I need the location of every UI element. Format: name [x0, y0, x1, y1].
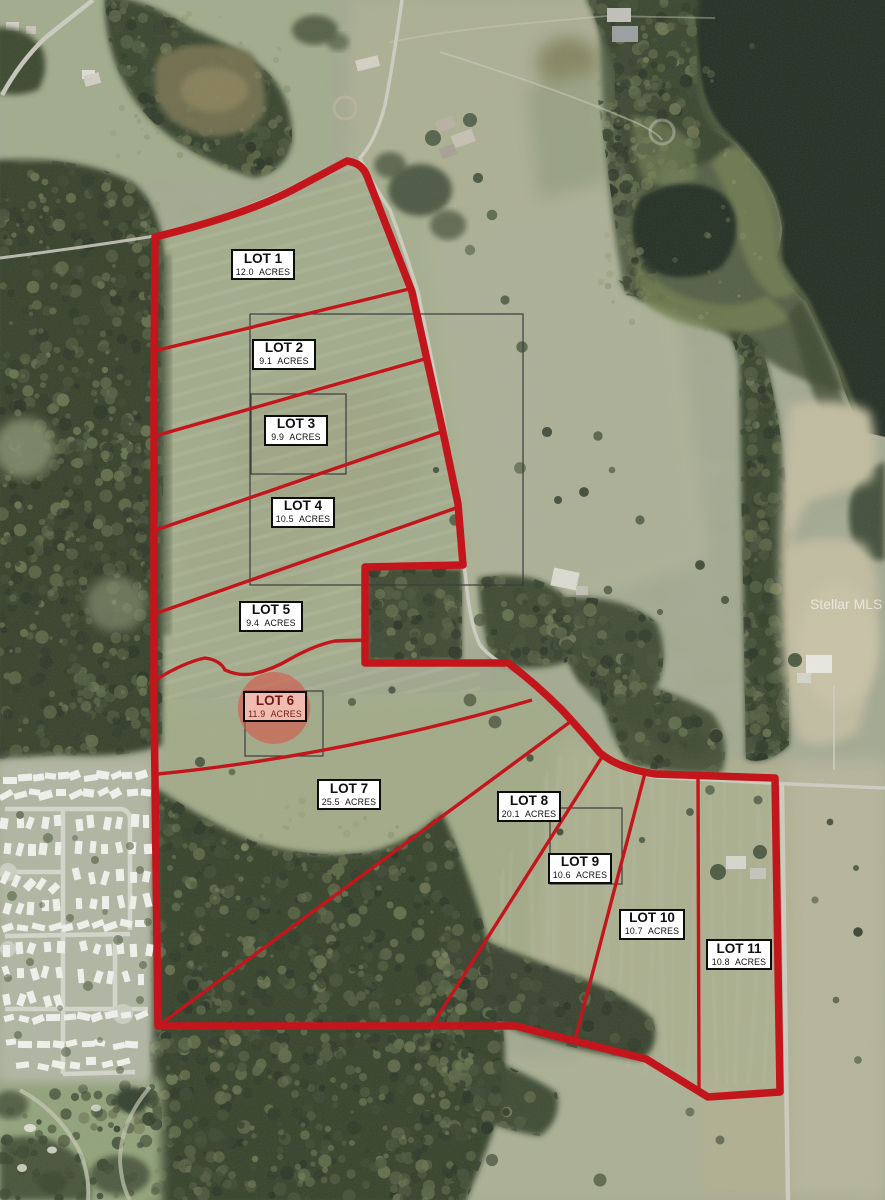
svg-text:20.1 ACRES: 20.1 ACRES: [502, 809, 557, 819]
svg-text:10.8 ACRES: 10.8 ACRES: [712, 957, 767, 967]
svg-text:12.0 ACRES: 12.0 ACRES: [236, 267, 291, 277]
svg-text:LOT 3: LOT 3: [277, 416, 316, 431]
svg-text:10.7 ACRES: 10.7 ACRES: [625, 926, 680, 936]
svg-text:9.4 ACRES: 9.4 ACRES: [246, 618, 295, 628]
svg-text:25.5 ACRES: 25.5 ACRES: [322, 797, 377, 807]
svg-text:10.6 ACRES: 10.6 ACRES: [553, 870, 608, 880]
svg-text:9.9 ACRES: 9.9 ACRES: [271, 432, 320, 442]
svg-text:LOT 10: LOT 10: [629, 910, 675, 925]
svg-text:LOT 9: LOT 9: [561, 854, 599, 869]
svg-text:LOT 7: LOT 7: [330, 781, 368, 796]
svg-text:LOT 1: LOT 1: [244, 251, 283, 266]
svg-text:10.5 ACRES: 10.5 ACRES: [276, 514, 331, 524]
svg-text:11.9 ACRES: 11.9 ACRES: [248, 709, 302, 719]
svg-text:9.1 ACRES: 9.1 ACRES: [259, 356, 308, 366]
svg-text:LOT 4: LOT 4: [284, 498, 323, 513]
svg-text:LOT 6: LOT 6: [256, 693, 295, 708]
svg-text:LOT 5: LOT 5: [252, 602, 291, 617]
svg-text:Stellar MLS: Stellar MLS: [810, 596, 882, 612]
svg-text:LOT 2: LOT 2: [265, 340, 303, 355]
svg-text:LOT 8: LOT 8: [510, 793, 549, 808]
svg-text:LOT 11: LOT 11: [716, 941, 762, 956]
